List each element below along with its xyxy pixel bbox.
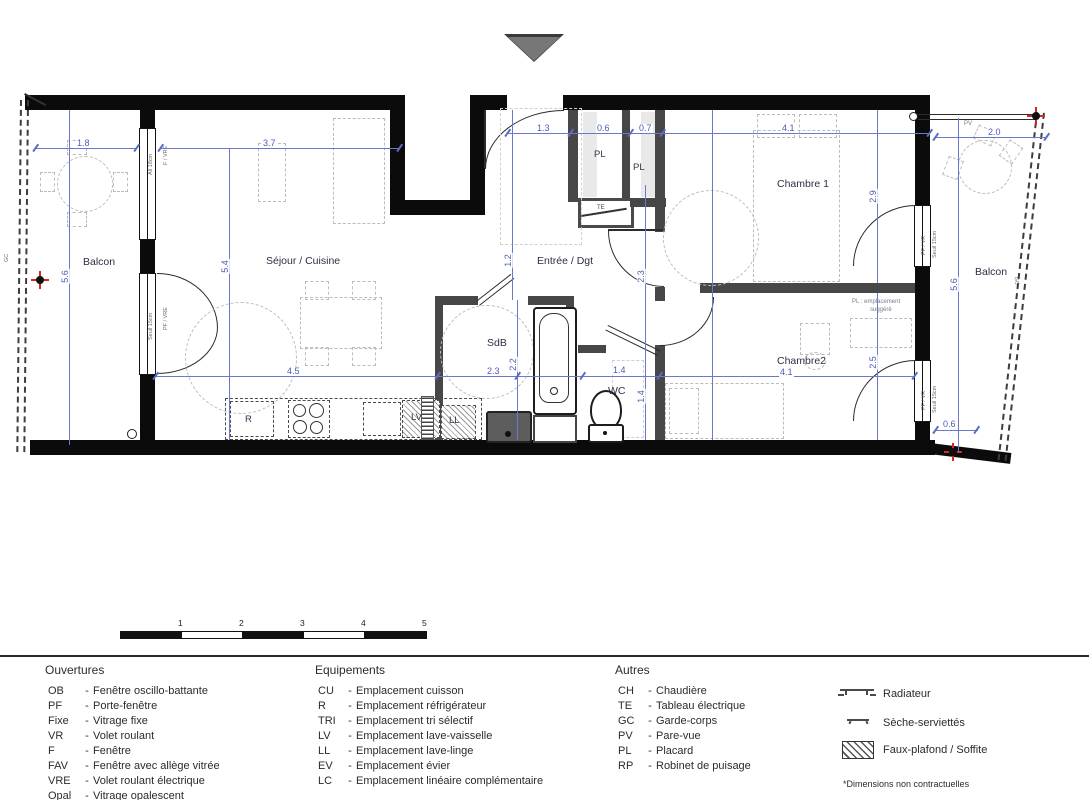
window-label: All 18cm <box>148 154 154 175</box>
dim-2-3-entree: 2.3 <box>637 269 646 284</box>
sink-box <box>363 402 401 436</box>
scale-tick-1: 1 <box>178 618 183 628</box>
dim-5-6-left: 5.6 <box>61 269 70 284</box>
pl-label-2: PL <box>633 162 645 173</box>
balcony-chair <box>40 172 55 192</box>
dim-2-5: 2.5 <box>869 355 878 370</box>
burner <box>293 404 306 417</box>
dim-2-2: 2.2 <box>509 357 518 372</box>
entrance-door-leaf <box>484 110 486 168</box>
room-label-balcon-left: Balcon <box>83 257 115 268</box>
dim-2-9: 2.9 <box>869 189 878 204</box>
dim-line <box>160 148 400 149</box>
scale-tick-5: 5 <box>422 618 427 628</box>
washbasin <box>486 411 532 443</box>
legend-item: TRI-Emplacement tri sélectif <box>318 714 543 729</box>
legend-title-autres: Autres <box>615 663 650 677</box>
wall-chambre1-chambre2 <box>700 283 915 293</box>
pare-vue-endpoint <box>909 112 918 121</box>
legend-item: LV-Emplacement lave-vaisselle <box>318 729 543 744</box>
dim-5-4: 5.4 <box>221 259 230 274</box>
chambre1-pillow <box>799 114 837 138</box>
legend-item: PF-Porte-fenêtre <box>48 699 220 714</box>
wall-top-right <box>563 95 930 110</box>
dim-line <box>935 137 1047 138</box>
dim-4-1-top: 4.1 <box>781 124 796 133</box>
toilet-tank <box>588 424 624 443</box>
legend-column-equipements: CU-Emplacement cuisson R-Emplacement réf… <box>318 684 543 789</box>
radiator <box>421 396 434 440</box>
sejour-cabinet-small <box>258 143 286 202</box>
legend-title-equipements: Equipements <box>315 663 385 677</box>
bathtub-step <box>533 415 577 443</box>
wall-wc-right <box>655 345 665 440</box>
dim-1-3: 1.3 <box>536 124 551 133</box>
sejour-cabinet <box>333 118 385 224</box>
legend-title-ouvertures: Ouvertures <box>45 663 104 677</box>
chambre2-pillow <box>669 388 699 434</box>
room-label-balcon-right: Balcon <box>975 267 1007 278</box>
wall-right-upper <box>915 110 930 205</box>
dim-1-4-h: 1.4 <box>612 366 627 375</box>
bathtub <box>533 307 577 415</box>
chambre2-door-arc <box>660 297 714 346</box>
pl-label-1: PL <box>594 149 606 160</box>
legend-item: PV-Pare-vue <box>618 729 751 744</box>
legend-label-seche-serviettes: Sèche-serviettés <box>883 716 965 731</box>
wall-bottom <box>30 440 935 455</box>
dim-line <box>155 376 915 377</box>
chambre2-desk <box>800 323 830 355</box>
sejour-chair <box>305 281 329 300</box>
legend-symbol-faux-plafond <box>842 741 874 759</box>
dim-0-6: 0.6 <box>596 124 611 133</box>
wall-notch-right <box>470 95 485 215</box>
room-label-chambre1: Chambre 1 <box>777 179 829 190</box>
dim-4-1-chambre2: 4.1 <box>779 368 794 377</box>
floor-plan-page: All 18cm F / VRE Seuil 15cm PF / VRE PF … <box>0 0 1089 800</box>
fridge-box <box>230 401 274 437</box>
wall-balcony-sep-1 <box>140 110 155 128</box>
window-label: PF / VR <box>921 236 927 255</box>
chambre2-balcony-door-arc <box>853 360 916 421</box>
te-label: TE <box>597 205 605 212</box>
legend-column-ouvertures: OB-Fenêtre oscillo-battante PF-Porte-fen… <box>48 684 220 800</box>
legend-item: Fixe-Vitrage fixe <box>48 714 220 729</box>
orientation-triangle <box>508 37 560 61</box>
legend-label-faux-plafond: Faux-plafond / Soffite <box>883 743 987 758</box>
dim-1-8: 1.8 <box>76 139 91 148</box>
room-label-wc: WC <box>608 386 626 397</box>
legend-item: RP-Robinet de puisage <box>618 759 751 774</box>
scale-tick-3: 3 <box>300 618 305 628</box>
dim-line <box>35 148 137 149</box>
sdb-door-leaf <box>476 274 514 306</box>
legend-item: EV-Emplacement évier <box>318 759 543 774</box>
dim-4-5: 4.5 <box>286 367 301 376</box>
burner <box>310 421 323 434</box>
wall-top-left <box>25 95 390 110</box>
balcony-chair <box>67 212 87 227</box>
dim-line <box>935 430 978 431</box>
legend-item: VRE-Volet roulant électrique <box>48 774 220 789</box>
balcony-table <box>57 156 113 212</box>
scale-tick-4: 4 <box>361 618 366 628</box>
legend-item: CU-Emplacement cuisson <box>318 684 543 699</box>
dim-0-6-right: 0.6 <box>942 420 957 429</box>
chambre1-turning-circle <box>663 190 759 286</box>
room-label-sdb: SdB <box>487 338 507 349</box>
legend-divider <box>0 655 1089 657</box>
wall-balcony-sep-3 <box>140 373 155 440</box>
garde-corps-left <box>16 100 29 452</box>
room-label-entree: Entrée / Dgt <box>537 256 593 267</box>
legend-item: VR-Volet roulant <box>48 729 220 744</box>
burner <box>309 403 324 418</box>
room-label-chambre2: Chambre2 <box>777 356 826 367</box>
robinet-puisage-symbol <box>127 429 137 439</box>
gc-label-left: GC <box>4 254 10 262</box>
dim-line <box>229 148 230 440</box>
legend-item: CH-Chaudière <box>618 684 751 699</box>
legend-item: Opal-Vitrage opalescent <box>48 789 220 800</box>
legend-item: TE-Tableau électrique <box>618 699 751 714</box>
sejour-chair <box>305 347 329 366</box>
wall-closet-divider <box>622 110 630 200</box>
legend-item: LL-Emplacement lave-linge <box>318 744 543 759</box>
wall-right-middle <box>915 265 930 360</box>
dim-5-6-right: 5.6 <box>950 277 959 292</box>
legend-label-radiateur: Radiateur <box>883 687 931 702</box>
chambre2-door-leaf <box>605 325 660 356</box>
balcony-chair <box>113 172 128 192</box>
dim-line <box>512 110 513 300</box>
window-f-vre <box>139 128 156 240</box>
chambre1-door-leaf <box>608 229 663 231</box>
window-label: Seuil 15cm <box>932 231 938 258</box>
chambre1-bed <box>753 130 840 282</box>
legend-note: *Dimensions non contractuelles <box>843 779 969 789</box>
legend-item: OB-Fenêtre oscillo-battante <box>48 684 220 699</box>
pv-label: PV <box>964 121 972 128</box>
te-niche <box>578 198 634 228</box>
sejour-chair <box>352 281 376 300</box>
legend-item: GC-Garde-corps <box>618 714 751 729</box>
dim-2-0: 2.0 <box>987 128 1002 137</box>
survey-marker <box>1028 108 1044 124</box>
dim-2-3-sdb: 2.3 <box>486 367 501 376</box>
dim-1-2: 1.2 <box>504 253 513 268</box>
survey-marker <box>32 272 48 288</box>
legend-item: F-Fenêtre <box>48 744 220 759</box>
window-label: PF / VR <box>921 391 927 410</box>
legend-item: R-Emplacement réfrigérateur <box>318 699 543 714</box>
wall-wc-top <box>578 345 606 353</box>
burner <box>293 420 307 434</box>
scale-tick-2: 2 <box>239 618 244 628</box>
wall-notch-left <box>390 95 405 215</box>
pare-vue-line <box>918 114 1036 120</box>
sdb-turning-circle <box>440 305 534 399</box>
dim-0-7: 0.7 <box>638 124 653 133</box>
legend-item: FAV-Fenêtre avec allège vitrée <box>48 759 220 774</box>
fridge-label: R <box>245 414 252 425</box>
window-label: Seuil 15cm <box>148 313 154 340</box>
wall-balcony-sep-2 <box>140 238 155 273</box>
legend-column-autres: CH-Chaudière TE-Tableau électrique GC-Ga… <box>618 684 751 774</box>
legend-item: PL-Placard <box>618 744 751 759</box>
washing-machine-label: LL <box>449 415 460 426</box>
legend-item: LC-Emplacement linéaire complémentaire <box>318 774 543 789</box>
dim-1-4-v: 1.4 <box>637 389 646 404</box>
sejour-table <box>300 297 382 349</box>
chambre1-balcony-door-arc <box>853 205 916 266</box>
window-label: Seuil 15cm <box>932 386 938 413</box>
dim-3-7: 3.7 <box>262 139 277 148</box>
sejour-chair <box>352 347 376 366</box>
dim-line <box>712 110 713 440</box>
chambre2-wardrobe-suggested <box>850 318 912 348</box>
pl-suggested-label-2: suggéré <box>870 307 892 314</box>
room-label-sejour: Séjour / Cuisine <box>266 256 340 267</box>
gc-label-right: GC <box>1013 276 1020 285</box>
